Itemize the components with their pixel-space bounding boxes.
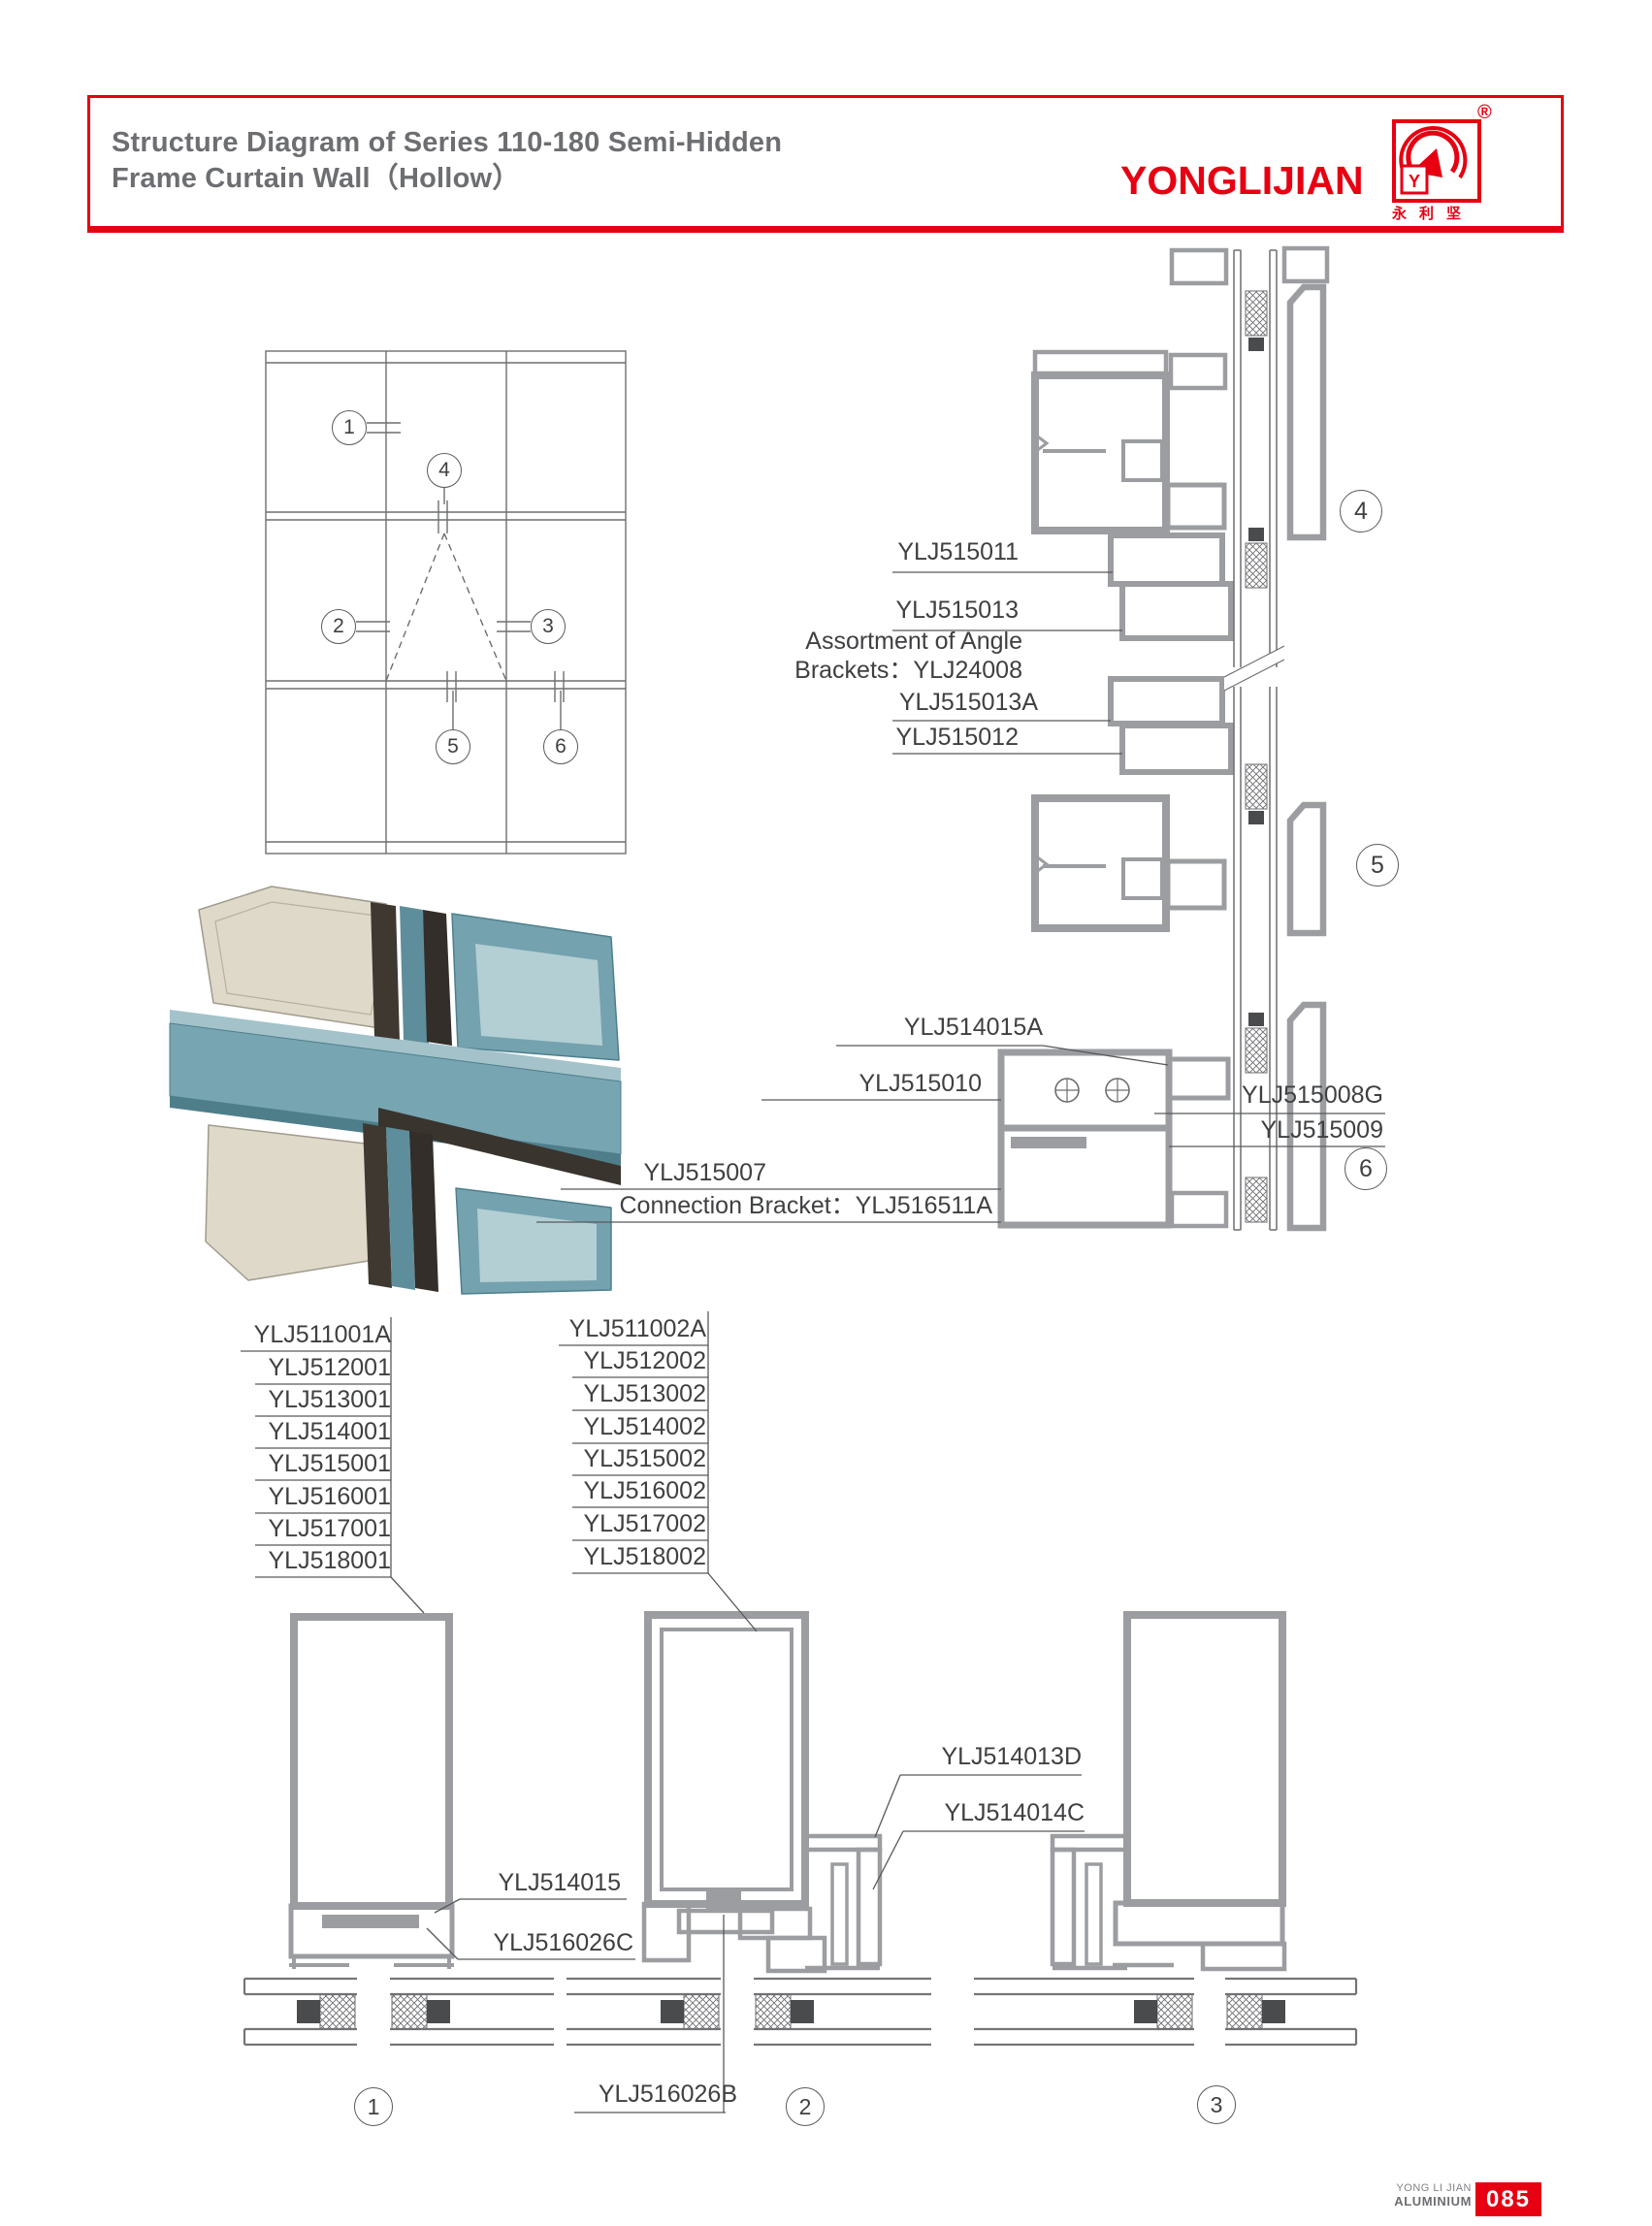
curtain-wall-3d-image: [170, 887, 621, 1294]
page-title: Structure Diagram of Series 110-180 Semi…: [112, 125, 782, 197]
angle-brackets-note-line1: Assortment of Angle: [764, 629, 1022, 656]
part-list-right-item: YLJ513002: [548, 1381, 706, 1408]
svg-text:Y: Y: [1409, 172, 1420, 191]
elevation-callout-5: 5: [436, 729, 470, 764]
elevation-callout-6: 6: [543, 729, 578, 764]
bottom-callout-2: 2: [786, 2087, 825, 2126]
page-title-line2: Frame Curtain Wall（Hollow）: [112, 161, 782, 197]
part-list-left-item: YLJ518001: [231, 1548, 391, 1575]
elevation-grid-drawing: [266, 351, 626, 854]
detail-callout-4: 4: [1340, 490, 1382, 532]
footer-brand-line2: ALUMINIUM: [1353, 2194, 1472, 2209]
part-list-right-item: YLJ512002: [548, 1348, 706, 1375]
footer-brand-line1: YONG LI JIAN: [1353, 2182, 1472, 2194]
part-list-left-item: YLJ514001: [231, 1419, 391, 1446]
brand-chinese: 永利坚: [1392, 203, 1477, 223]
screw-symbols: [1055, 1079, 1129, 1102]
part-label-515013: YLJ515013: [834, 597, 1019, 625]
part-label-515011: YLJ515011: [834, 539, 1019, 566]
part-list-right-item: YLJ515002: [548, 1446, 706, 1473]
registered-mark: ®: [1477, 102, 1492, 124]
part-label-515012: YLJ515012: [834, 725, 1019, 752]
detail-callout-5: 5: [1356, 844, 1399, 887]
elevation-callout-4: 4: [427, 453, 462, 488]
part-label-514015: YLJ514015: [456, 1870, 621, 1897]
detail-callout-6: 6: [1344, 1147, 1387, 1190]
part-label-516026c: YLJ516026C: [452, 1930, 633, 1957]
part-label-514014c: YLJ514014C: [905, 1800, 1085, 1827]
part-label-516026b: YLJ516026B: [570, 2081, 737, 2109]
part-label-515013a: YLJ515013A: [829, 690, 1038, 717]
part-list-left-item: YLJ517001: [231, 1516, 391, 1543]
angle-brackets-note-line2: Brackets：YLJ24008: [764, 658, 1022, 685]
part-list-right-item: YLJ511002A: [548, 1316, 706, 1343]
part-label-514013d: YLJ514013D: [902, 1744, 1082, 1771]
footer-brand: YONG LI JIAN ALUMINIUM: [1353, 2182, 1472, 2209]
technical-drawing-layer: [0, 0, 1652, 2226]
part-list-right-item: YLJ516002: [548, 1478, 706, 1505]
page-title-line1: Structure Diagram of Series 110-180 Semi…: [112, 125, 782, 161]
horizontal-glass-strips: [244, 1979, 1356, 2045]
part-label-515009: YLJ515009: [1189, 1117, 1383, 1145]
part-list-left-item: YLJ516001: [231, 1484, 391, 1511]
bottom-callout-1: 1: [354, 2087, 393, 2126]
elevation-callout-3: 3: [531, 609, 566, 644]
elevation-callout-1: 1: [332, 410, 367, 445]
part-list-right-item: YLJ517002: [548, 1511, 706, 1538]
page-number-badge: 085: [1475, 2182, 1541, 2216]
bottom-callout-3: 3: [1197, 2085, 1236, 2124]
elevation-callout-2: 2: [321, 609, 356, 644]
part-list-left-item: YLJ515001: [231, 1451, 391, 1478]
part-list-right-item: YLJ518002: [548, 1544, 706, 1571]
bottom-sections-drawing: [289, 1615, 1284, 1971]
part-label-514015a: YLJ514015A: [834, 1015, 1043, 1042]
part-label-515007: YLJ515007: [570, 1160, 766, 1187]
part-label-515010: YLJ515010: [766, 1071, 982, 1098]
catalog-page: Structure Diagram of Series 110-180 Semi…: [0, 0, 1652, 2226]
leader-lines: [241, 572, 1385, 2113]
part-list-left-item: YLJ511001A: [231, 1322, 391, 1349]
part-list-left-item: YLJ513001: [231, 1387, 391, 1414]
part-list-left-item: YLJ512001: [231, 1355, 391, 1382]
connection-bracket-note: Connection Bracket：YLJ516511A: [532, 1193, 992, 1220]
page-header: Structure Diagram of Series 110-180 Semi…: [87, 95, 1564, 233]
part-label-515008g: YLJ515008G: [1172, 1082, 1383, 1110]
brand-wordmark: YONGLIJIAN: [1120, 158, 1364, 204]
part-list-right-item: YLJ514002: [548, 1414, 706, 1441]
